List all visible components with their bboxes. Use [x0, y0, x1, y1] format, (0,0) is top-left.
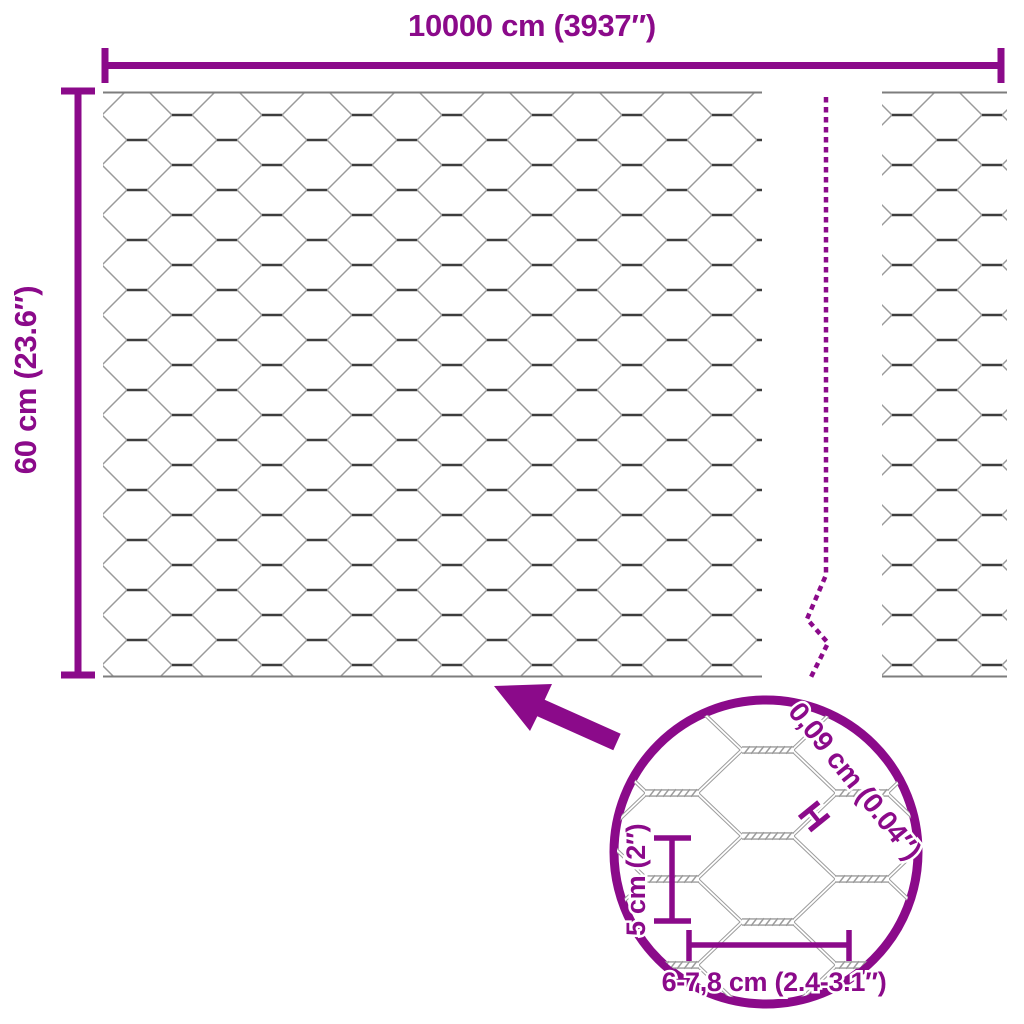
- product-dimension-diagram: 10000 cm (3937″) 60 cm (23.6″) 0,09 cm (…: [0, 0, 1024, 1024]
- wire-mesh-main: [103, 92, 762, 677]
- width-label: 10000 cm (3937″): [408, 8, 656, 43]
- height-label: 60 cm (23.6″): [8, 286, 43, 474]
- wire-mesh-right: [882, 92, 1007, 677]
- mesh-height-label: 5 cm (2″): [621, 824, 651, 936]
- mesh-panel-main: [103, 92, 762, 677]
- mesh-panel-right: [882, 92, 1007, 677]
- mesh-width-label: 6-7,8 cm (2.4-3.1″): [662, 967, 887, 997]
